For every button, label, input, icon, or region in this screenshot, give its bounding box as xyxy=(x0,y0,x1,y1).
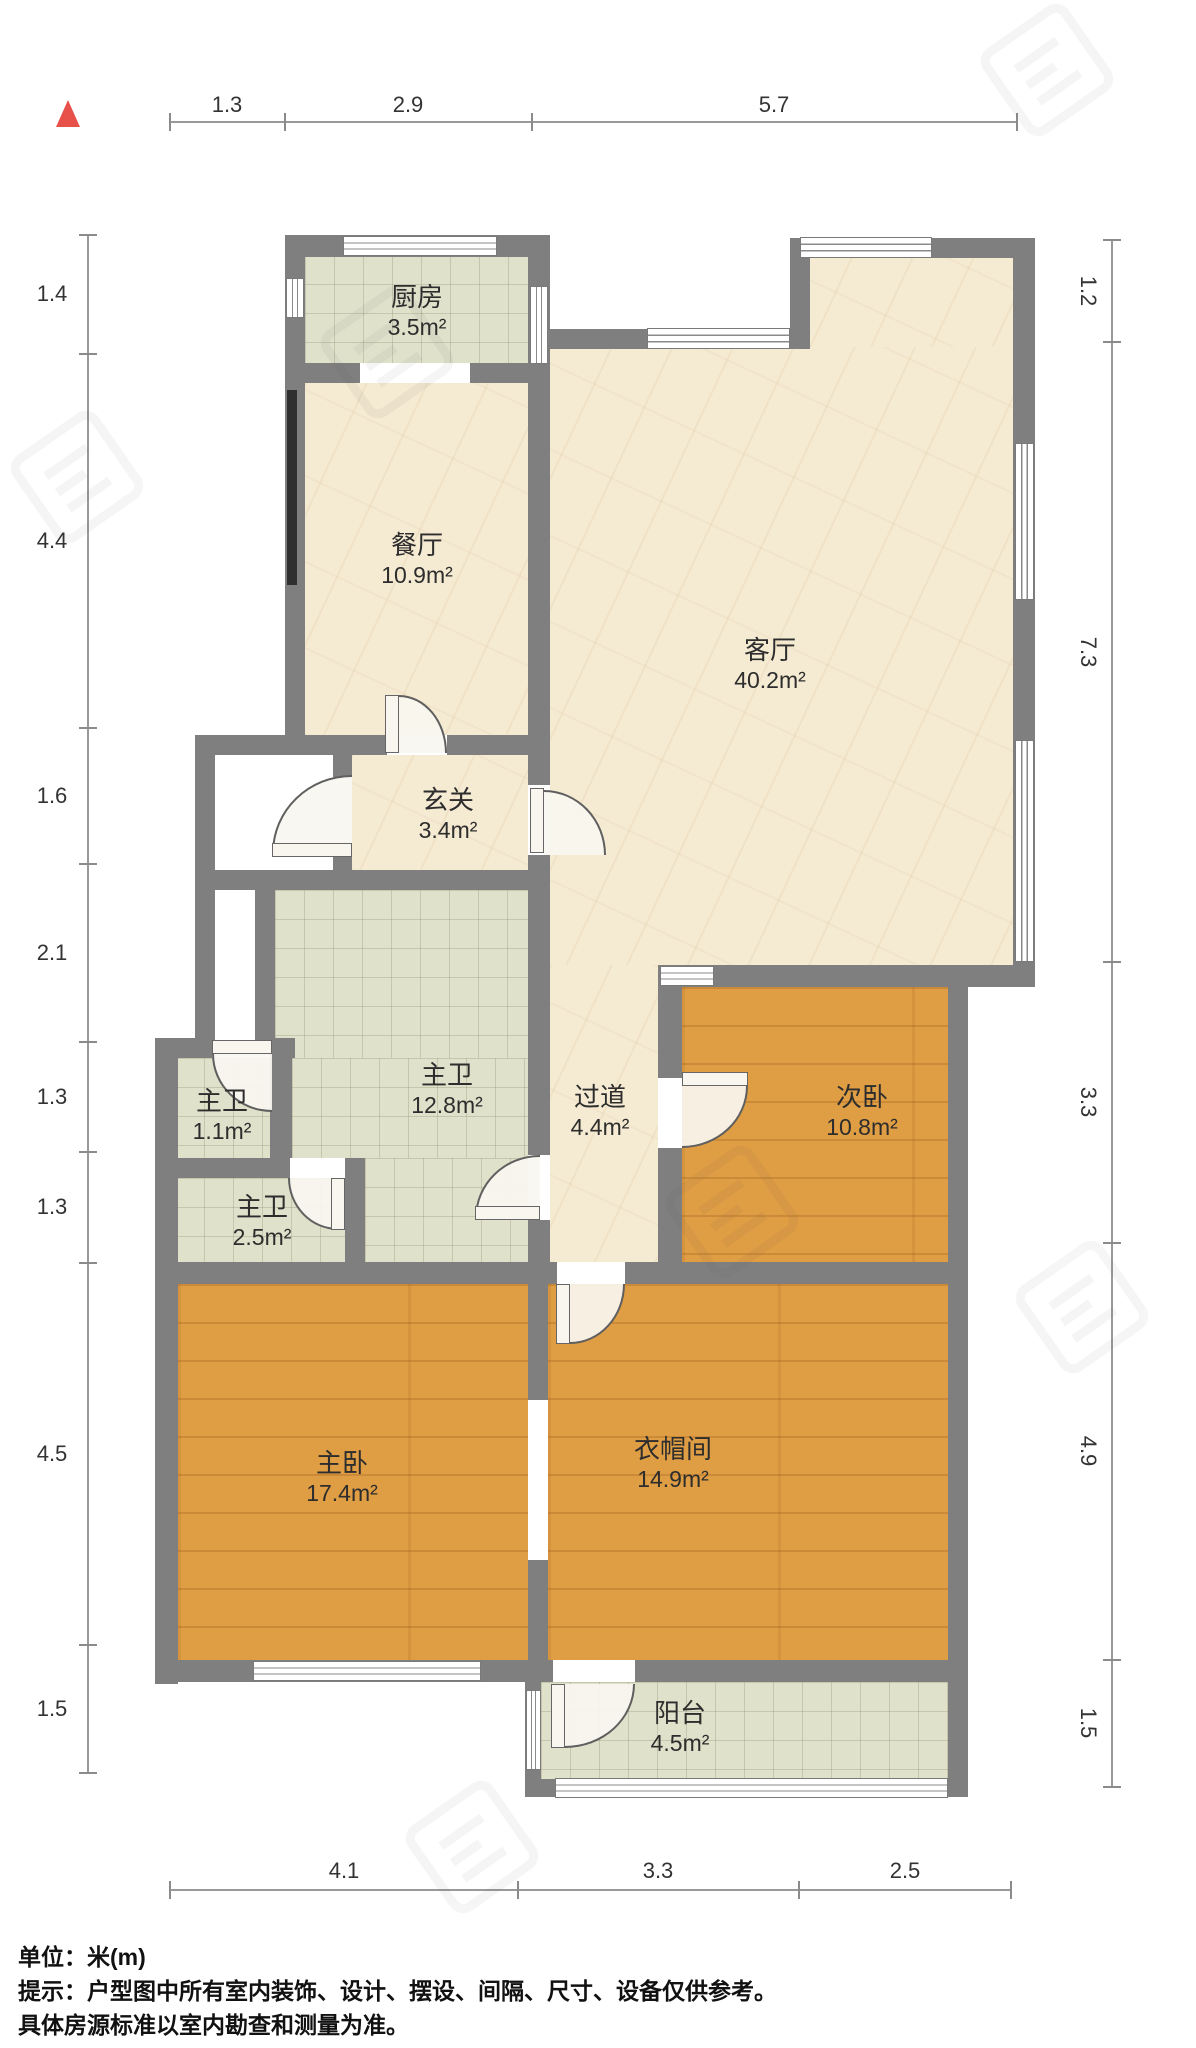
room-label-closet: 衣帽间 14.9m² xyxy=(634,1434,712,1494)
balcony-door-leaf xyxy=(551,1684,565,1748)
room-area: 17.4m² xyxy=(306,1478,378,1508)
dim-tick xyxy=(79,1041,97,1043)
balcony-west-window xyxy=(526,1690,541,1770)
dim-tick xyxy=(531,113,533,131)
room-name: 主卫 xyxy=(411,1060,483,1090)
wall-outer-west xyxy=(155,1038,178,1684)
wall-dining-dark-stripe xyxy=(287,390,297,585)
wall-hallway-east-n xyxy=(658,987,682,1078)
dim-tick xyxy=(1103,961,1121,963)
footer-unit-note: 单位：米(m) xyxy=(18,1938,146,1972)
watermark-icon xyxy=(1010,1235,1155,1380)
kitchen-left-window xyxy=(286,278,304,318)
room-area: 3.4m² xyxy=(419,815,478,845)
dim-line-bottom xyxy=(170,1889,1011,1891)
room-label-dining: 餐厅 10.9m² xyxy=(381,530,453,590)
kitchen-top-window xyxy=(343,236,497,256)
footer-disclaimer-2: 具体房源标准以室内勘查和测量为准。 xyxy=(18,2006,409,2040)
room-area: 4.5m² xyxy=(651,1728,710,1758)
dim-tick xyxy=(79,727,97,729)
room-area: 10.8m² xyxy=(826,1112,898,1142)
wall-dining-bottom-w xyxy=(195,735,387,755)
wall-mid-band-w xyxy=(155,1262,557,1284)
dim-left-6: 1.3 xyxy=(22,1194,82,1220)
wall-mid-band-e xyxy=(625,1262,968,1284)
dim-right-1: 1.2 xyxy=(1075,261,1101,321)
room-name: 主卧 xyxy=(306,1448,378,1478)
dim-tick xyxy=(517,1881,519,1899)
dim-left-8: 1.5 xyxy=(22,1696,82,1722)
wall-alcove-west xyxy=(195,735,215,1040)
wall-bath-small-east xyxy=(270,1042,292,1158)
wall-master-bath-west xyxy=(255,870,275,1040)
dim-tick xyxy=(79,1772,97,1774)
dim-top-2: 2.9 xyxy=(378,92,438,118)
room-name: 次卧 xyxy=(826,1082,898,1112)
living-top-window xyxy=(647,328,790,349)
dim-right-5: 1.5 xyxy=(1075,1693,1101,1753)
dim-bottom-3: 2.5 xyxy=(875,1858,935,1884)
dim-tick xyxy=(284,113,286,131)
room-name: 客厅 xyxy=(734,635,806,665)
wall-bottom-e xyxy=(635,1660,968,1682)
watermark-icon xyxy=(400,1775,545,1920)
room-label-foyer: 玄关 3.4m² xyxy=(419,785,478,845)
room-label-second-bedroom: 次卧 10.8m² xyxy=(826,1082,898,1142)
dim-top-1: 1.3 xyxy=(197,92,257,118)
master-bath-floor-1 xyxy=(275,890,528,1058)
wall-mid-column-mid xyxy=(528,855,550,1155)
bedroom-bottom-window xyxy=(253,1661,481,1681)
wall-bedroom-divider-n xyxy=(528,1284,548,1400)
dim-tick xyxy=(1103,341,1121,343)
room-label-living: 客厅 40.2m² xyxy=(734,635,806,695)
second-bedroom-door-leaf xyxy=(682,1072,748,1086)
entrance-door-leaf xyxy=(272,843,352,857)
wall-outer-east xyxy=(948,987,968,1797)
closet-floor xyxy=(548,1284,948,1660)
wall-bedroom-divider-s xyxy=(528,1560,548,1660)
room-name: 阳台 xyxy=(651,1698,710,1728)
room-label-bath-small: 主卫 1.1m² xyxy=(193,1086,252,1146)
dim-tick xyxy=(1103,239,1121,241)
room-label-balcony: 阳台 4.5m² xyxy=(651,1698,710,1758)
room-label-hallway: 过道 4.4m² xyxy=(571,1082,630,1142)
room-label-bath-mid: 主卫 2.5m² xyxy=(233,1192,292,1252)
dim-right-4: 4.9 xyxy=(1075,1421,1101,1481)
dim-tick xyxy=(1103,1242,1121,1244)
room-name: 衣帽间 xyxy=(634,1434,712,1464)
dim-top-3: 5.7 xyxy=(744,92,804,118)
dim-right-2: 7.3 xyxy=(1075,622,1101,682)
balcony-bottom-window xyxy=(555,1778,948,1798)
dim-tick xyxy=(169,113,171,131)
closet-door-leaf xyxy=(556,1284,570,1344)
dim-tick xyxy=(1010,1881,1012,1899)
dim-left-3: 1.6 xyxy=(22,783,82,809)
dim-left-5: 1.3 xyxy=(22,1084,82,1110)
room-area: 2.5m² xyxy=(233,1222,292,1252)
bay-top-window xyxy=(800,237,932,258)
room-name: 主卫 xyxy=(233,1192,292,1222)
room-name: 餐厅 xyxy=(381,530,453,560)
footer-disclaimer-1: 提示：户型图中所有室内装饰、设计、摆设、间隔、尺寸、设备仅供参考。 xyxy=(18,1972,777,2006)
room-label-master-bedroom: 主卧 17.4m² xyxy=(306,1448,378,1508)
living-east-window-1 xyxy=(1015,443,1034,600)
room-name: 玄关 xyxy=(419,785,478,815)
room-area: 4.4m² xyxy=(571,1112,630,1142)
dim-left-7: 4.5 xyxy=(22,1441,82,1467)
dim-bottom-1: 4.1 xyxy=(314,1858,374,1884)
room-area: 1.1m² xyxy=(193,1116,252,1146)
room-name: 主卫 xyxy=(193,1086,252,1116)
wall-foyer-west-top xyxy=(333,755,352,777)
dim-line-top xyxy=(170,121,1017,123)
kitchen-right-window xyxy=(530,286,548,364)
room-area: 14.9m² xyxy=(634,1464,712,1494)
room-area: 40.2m² xyxy=(734,665,806,695)
dim-bottom-2: 3.3 xyxy=(628,1858,688,1884)
living-bay-floor xyxy=(790,258,1015,358)
room-area: 10.9m² xyxy=(381,560,453,590)
living-east-window-2 xyxy=(1015,740,1034,962)
wall-living-bottom xyxy=(658,965,1035,987)
living-bottom-window xyxy=(660,966,714,986)
foyer-door-leaf xyxy=(530,788,544,853)
dim-tick xyxy=(1103,1659,1121,1661)
floor-plan-canvas: 厨房 3.5m² 餐厅 10.9m² 客厅 40.2m² 玄关 3.4m² 主卫… xyxy=(0,0,1196,2048)
dim-tick xyxy=(79,353,97,355)
north-arrow-icon xyxy=(56,100,80,127)
bath-mid-door-leaf xyxy=(331,1178,345,1230)
wall-dining-bottom-e xyxy=(447,735,550,755)
dim-tick xyxy=(1103,1786,1121,1788)
dim-right-3: 3.3 xyxy=(1075,1072,1101,1132)
dim-tick xyxy=(79,1262,97,1264)
dim-left-4: 2.1 xyxy=(22,940,82,966)
dim-tick xyxy=(798,1881,800,1899)
entrance-door-arc xyxy=(272,775,352,853)
dim-tick xyxy=(79,234,97,236)
master-bath-door-leaf xyxy=(475,1206,540,1220)
dim-line-right xyxy=(1111,240,1113,1787)
room-label-master-bath: 主卫 12.8m² xyxy=(411,1060,483,1120)
dim-tick xyxy=(79,1151,97,1153)
room-name: 过道 xyxy=(571,1082,630,1112)
dim-left-1: 1.4 xyxy=(22,281,82,307)
master-bath-floor-2 xyxy=(292,1058,528,1158)
wall-bath-divider xyxy=(160,1158,290,1178)
dim-tick xyxy=(169,1881,171,1899)
dining-door-leaf xyxy=(385,695,399,753)
room-area: 12.8m² xyxy=(411,1090,483,1120)
dim-tick xyxy=(79,863,97,865)
bath-small-door-leaf xyxy=(212,1040,272,1054)
dim-tick xyxy=(79,1644,97,1646)
